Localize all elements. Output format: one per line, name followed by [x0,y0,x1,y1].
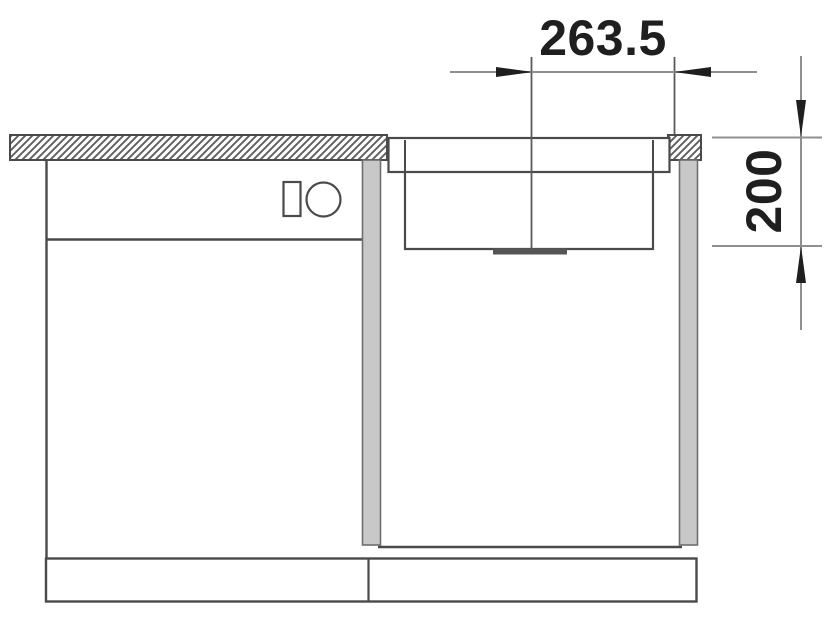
technical-drawing: 263.5 200 [0,0,826,620]
drain-outlet [493,249,567,255]
left-cabinet [46,160,362,601]
dim-width-arrow-right [674,67,711,77]
cabinet-right-side-panel [680,160,698,545]
sink-base-cabinet [363,160,698,547]
dim-depth-arrow-top [796,100,806,137]
worktop-left-section [10,135,387,160]
control-panel-rect [284,182,301,216]
plinth [46,559,697,602]
dim-width-label: 263.5 [539,10,667,66]
sink-rim [389,138,670,172]
dimension-width: 263.5 [450,10,757,135]
sink-section [389,57,670,255]
drawing-canvas: 263.5 200 [0,0,826,620]
dim-depth-label: 200 [736,149,792,234]
worktop-right-section [668,135,701,160]
dim-width-arrow-left [496,67,533,77]
dimension-depth: 200 [712,56,822,330]
dim-depth-arrow-bottom [796,246,806,283]
cabinet-left-side-panel [363,160,381,545]
control-knob-circle [307,183,341,217]
plinth-band [46,559,697,602]
sink-bowl [405,172,653,249]
